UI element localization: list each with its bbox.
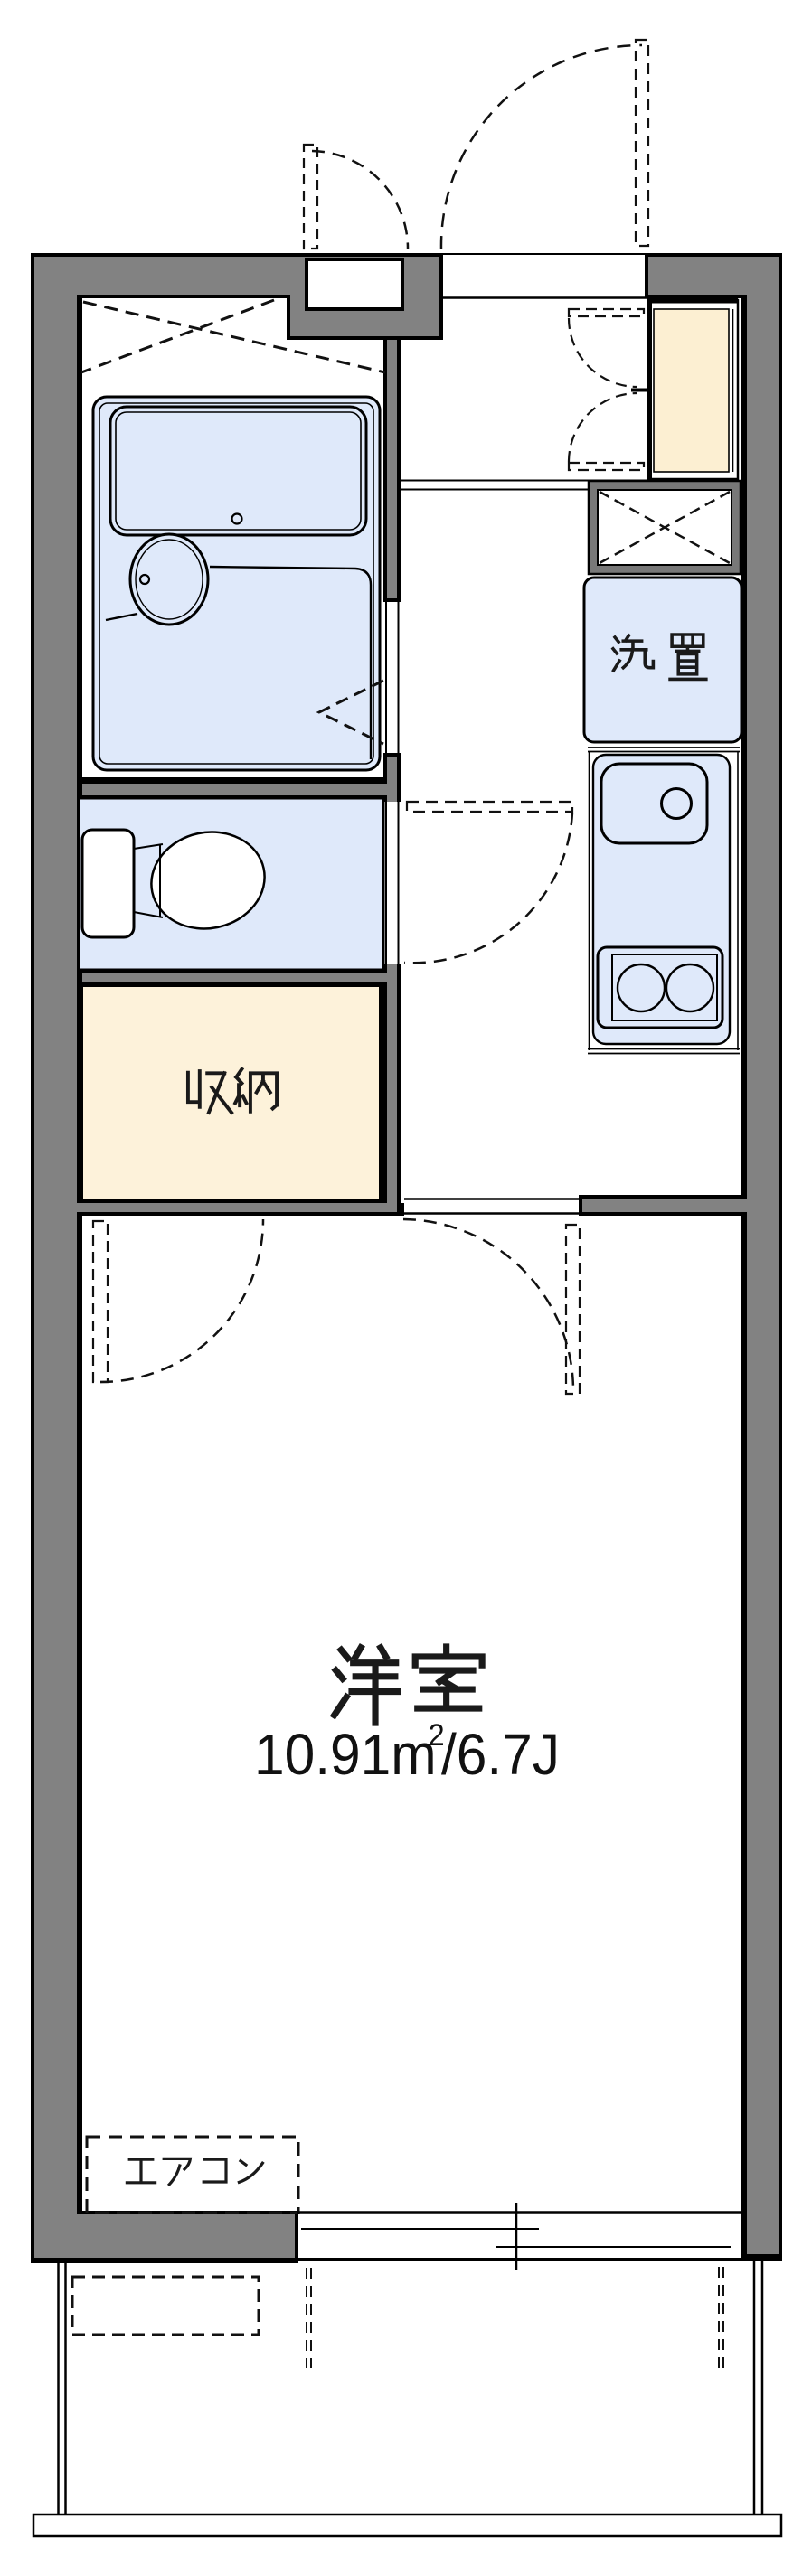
- svg-text:/6.7J: /6.7J: [441, 1723, 560, 1787]
- svg-text:10.91m: 10.91m: [254, 1723, 437, 1787]
